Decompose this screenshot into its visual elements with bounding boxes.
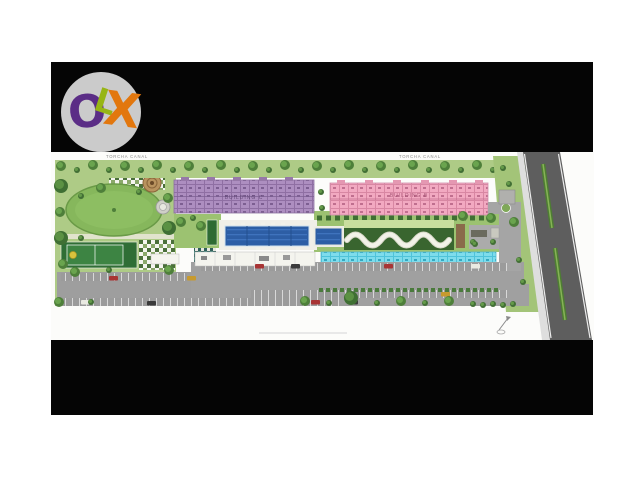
green-court-strip <box>207 220 217 245</box>
sports-court <box>61 242 137 268</box>
site-plan: TORCHA CANAL TORCHA CANAL <box>51 152 594 340</box>
letterbox-top: O L X <box>51 62 593 152</box>
entrance-island <box>502 204 511 213</box>
letterbox-bottom <box>51 340 593 415</box>
building-b-label: BUILDING B <box>390 193 428 199</box>
site-plan-drawing: TORCHA CANAL TORCHA CANAL <box>51 152 594 340</box>
swimming-pool <box>225 223 309 251</box>
timber-deck <box>456 224 465 248</box>
top-tree-row <box>56 160 526 178</box>
kids-pool <box>313 226 344 247</box>
building-b: BUILDING B <box>330 180 488 215</box>
building-c-label: BUILDING C <box>225 195 264 201</box>
clubhouse-row <box>151 252 315 266</box>
guard-house <box>151 254 179 264</box>
olx-logo: O L X <box>61 72 141 152</box>
olx-logo-letter-x: X <box>101 85 143 137</box>
canal-label-right: TORCHA CANAL <box>399 154 441 159</box>
canal-label-left: TORCHA CANAL <box>106 154 148 159</box>
building-c: BUILDING C <box>174 177 314 213</box>
olx-listing-photo: O L X <box>0 0 640 480</box>
